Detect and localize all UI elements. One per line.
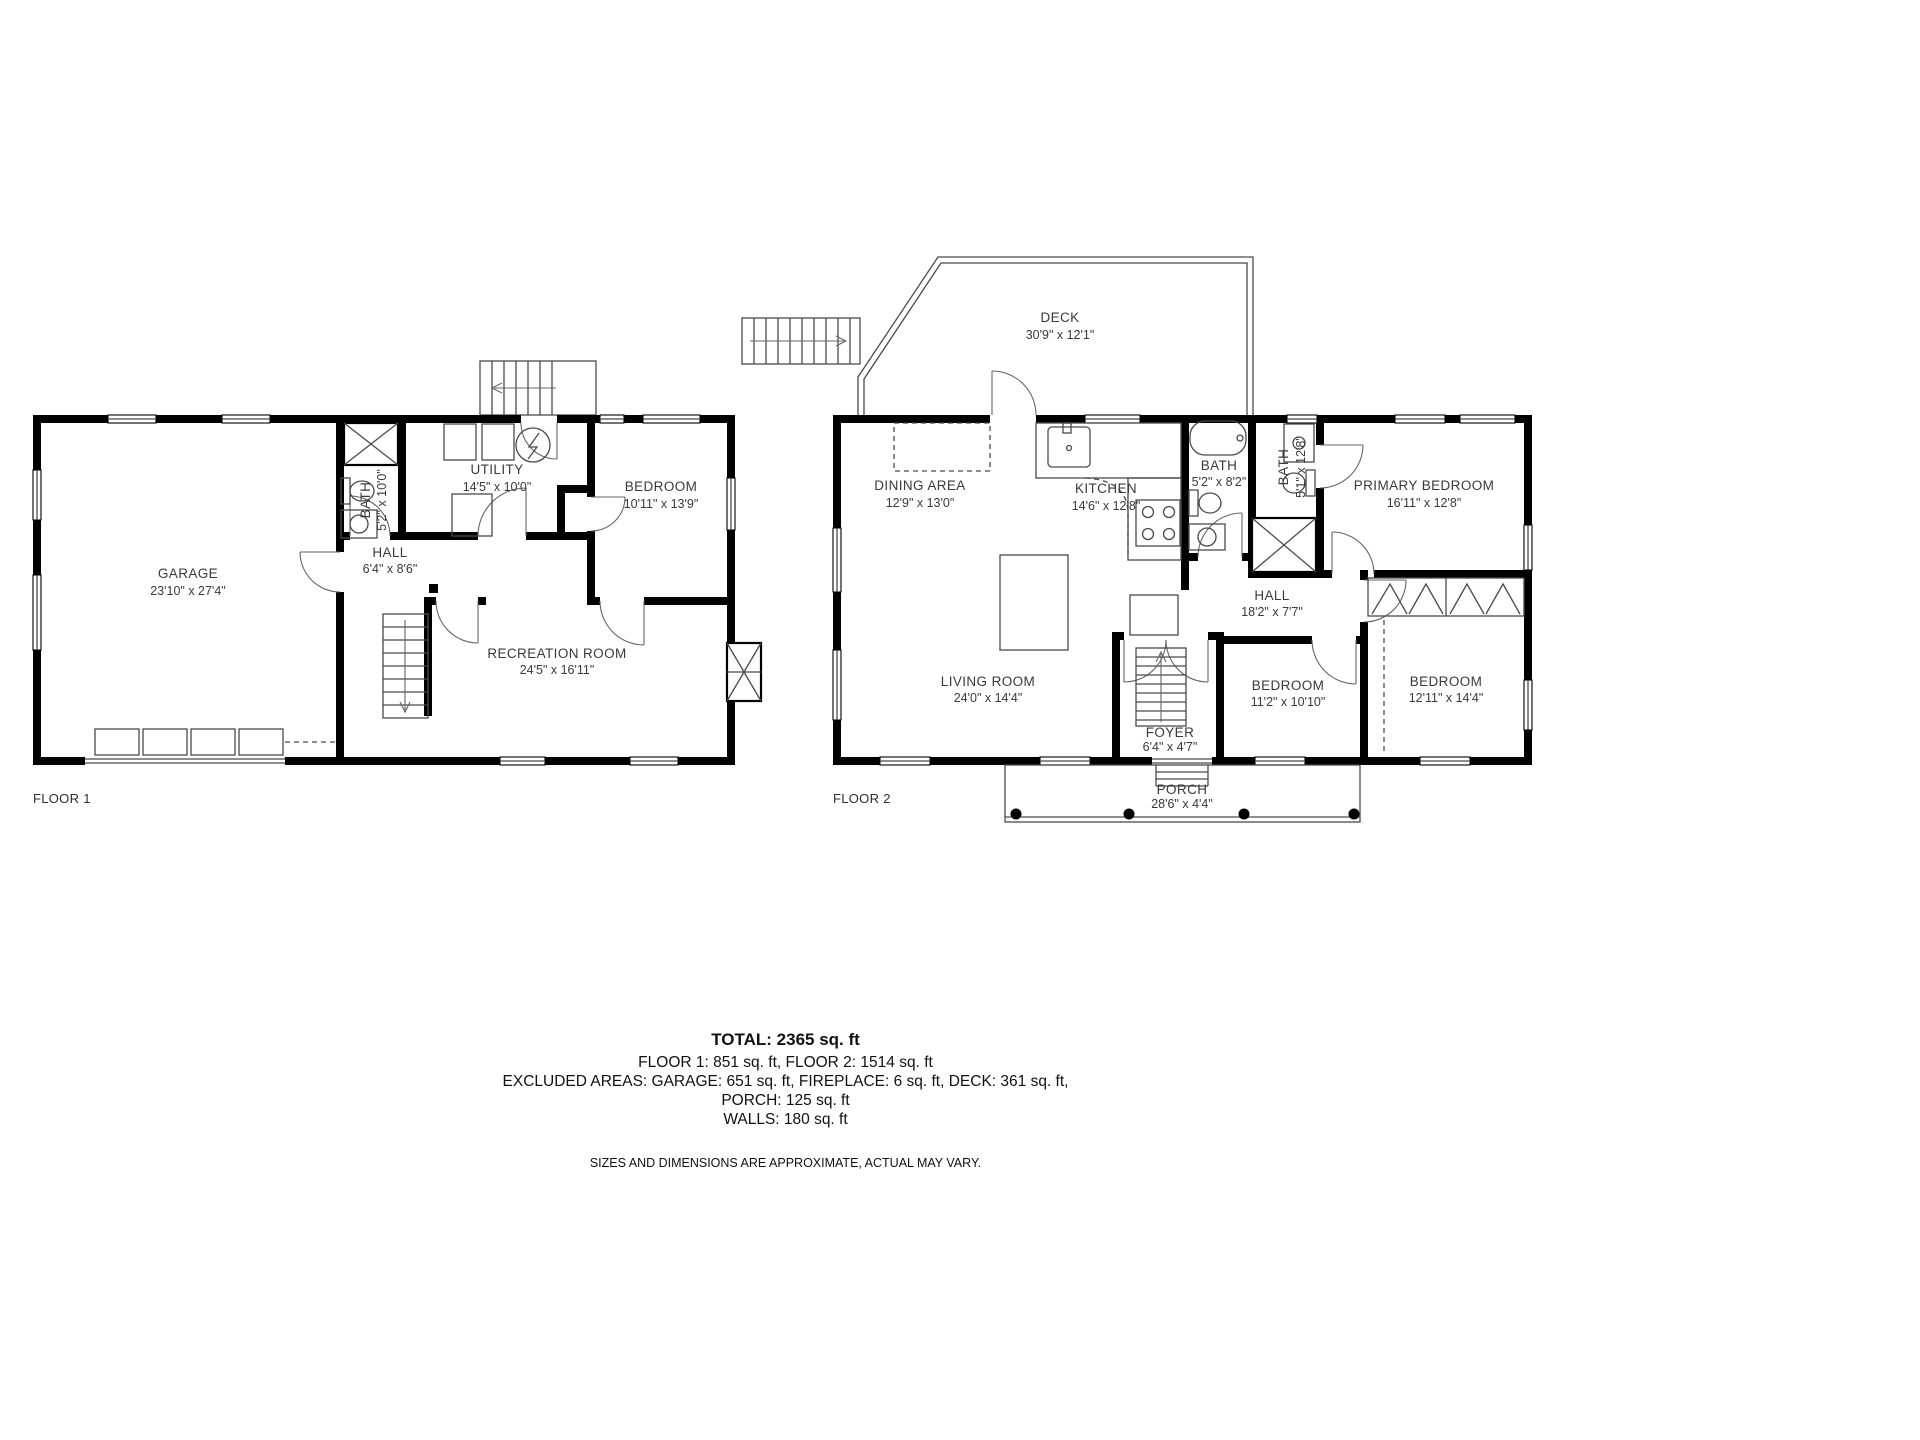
kitchen-counter [1036, 423, 1181, 478]
floor2-walls [833, 415, 1532, 765]
living-room-dims: 24'0" x 14'4" [954, 691, 1023, 705]
stove-icon [1136, 500, 1180, 546]
dining-dims: 12'9" x 13'0" [886, 496, 955, 510]
bath2b-label: BATH [1276, 449, 1291, 486]
walls-area: WALLS: 180 sq. ft [33, 1110, 1538, 1129]
porch-dims: 28'6" x 4'4" [1151, 797, 1213, 811]
bath2b-dims: 5'1" x 12'8" [1294, 436, 1308, 498]
dining-label: DINING AREA [874, 478, 965, 493]
deck-dims: 30'9" x 12'1" [1026, 328, 1095, 342]
foyer-label: FOYER [1146, 725, 1195, 740]
water-heater-icon [516, 428, 550, 462]
post [429, 584, 438, 593]
floor1-tag: FLOOR 1 [33, 791, 91, 806]
area-summary: TOTAL: 2365 sq. ft FLOOR 1: 851 sq. ft, … [33, 1030, 1538, 1183]
hall2-dims: 18'2" x 7'7" [1241, 605, 1303, 619]
floor1-walls [33, 415, 735, 765]
kitchen-fixtures [894, 423, 1181, 650]
garage-label: GARAGE [158, 566, 218, 581]
utility-sink-icon [452, 494, 492, 536]
floor1-plan: GARAGE 23'10" x 27'4" BATH 5'2" x 10'0" … [33, 361, 761, 806]
utility-label: UTILITY [470, 462, 523, 477]
closet-bifold-doors [1368, 578, 1524, 755]
fireplace-icon [727, 643, 761, 701]
shower-icon [1252, 518, 1316, 572]
utility-dims: 14'5" x 10'0" [463, 480, 532, 494]
floorplan-drawing: GARAGE 23'10" x 27'4" BATH 5'2" x 10'0" … [0, 0, 1920, 1000]
floor2-doors [992, 371, 1406, 763]
bedroom2-label: BEDROOM [1252, 678, 1325, 693]
foyer-dims: 6'4" x 4'7" [1143, 740, 1198, 754]
porch-column [1124, 809, 1135, 820]
primary-bedroom-label: PRIMARY BEDROOM [1354, 478, 1495, 493]
floorplan-canvas: GARAGE 23'10" x 27'4" BATH 5'2" x 10'0" … [0, 0, 1920, 1440]
floor1-exterior-stairs-icon [480, 361, 596, 415]
shower-icon [344, 423, 398, 465]
porch-column [1011, 809, 1022, 820]
bath1-label: BATH [358, 482, 373, 519]
sink-icon [1189, 524, 1225, 550]
bedroom1-label: BEDROOM [625, 479, 698, 494]
recreation-label: RECREATION ROOM [487, 646, 626, 661]
floor2-tag: FLOOR 2 [833, 791, 891, 806]
floor2-plan: DECK 30'9" x 12'1" DINING AREA 12'9" x 1… [742, 257, 1532, 822]
fridge-icon [1130, 595, 1178, 635]
washer-icon [444, 424, 476, 460]
floor-areas: FLOOR 1: 851 sq. ft, FLOOR 2: 1514 sq. f… [33, 1053, 1538, 1072]
recreation-dims: 24'5" x 16'11" [520, 663, 595, 677]
hall1-dims: 6'4" x 8'6" [363, 562, 418, 576]
bath1-dims: 5'2" x 10'0" [375, 469, 389, 531]
porch-column [1349, 809, 1360, 820]
dryer-icon [482, 424, 514, 460]
foyer-stairs-up-icon [1136, 648, 1186, 726]
porch-label: PORCH [1157, 782, 1208, 797]
kitchen-label: KITCHEN [1075, 481, 1137, 496]
porch-column [1239, 809, 1250, 820]
hall2-label: HALL [1254, 588, 1289, 603]
deck-label: DECK [1040, 310, 1079, 325]
total-area: TOTAL: 2365 sq. ft [33, 1030, 1538, 1050]
upper-cabinets [894, 423, 990, 471]
hall1-label: HALL [372, 545, 407, 560]
kitchen-sink-icon [1048, 423, 1090, 467]
bedroom3-label: BEDROOM [1410, 674, 1483, 689]
disclaimer: SIZES AND DIMENSIONS ARE APPROXIMATE, AC… [33, 1156, 1538, 1170]
porch-area: PORCH: 125 sq. ft [33, 1091, 1538, 1110]
garage-dims: 23'10" x 27'4" [150, 584, 226, 598]
floor1-stairs-down-icon [383, 614, 428, 718]
primary-bedroom-dims: 16'11" x 12'8" [1387, 496, 1462, 510]
bedroom3-dims: 12'11" x 14'4" [1409, 691, 1484, 705]
kitchen-dims: 14'6" x 12'8" [1072, 499, 1141, 513]
bedroom1-dims: 10'11" x 13'9" [624, 497, 699, 511]
bath2a-dims: 5'2" x 8'2" [1192, 475, 1247, 489]
bath2a-label: BATH [1201, 458, 1238, 473]
kitchen-island [1000, 555, 1068, 650]
bedroom2-dims: 11'2" x 10'10" [1251, 695, 1326, 709]
floor1-windows [33, 415, 735, 765]
excluded-areas: EXCLUDED AREAS: GARAGE: 651 sq. ft, FIRE… [33, 1072, 1538, 1091]
living-room-label: LIVING ROOM [941, 674, 1035, 689]
toilet-icon [1189, 490, 1221, 516]
deck-stairs-icon [742, 318, 860, 364]
bathtub-icon [1190, 421, 1246, 455]
